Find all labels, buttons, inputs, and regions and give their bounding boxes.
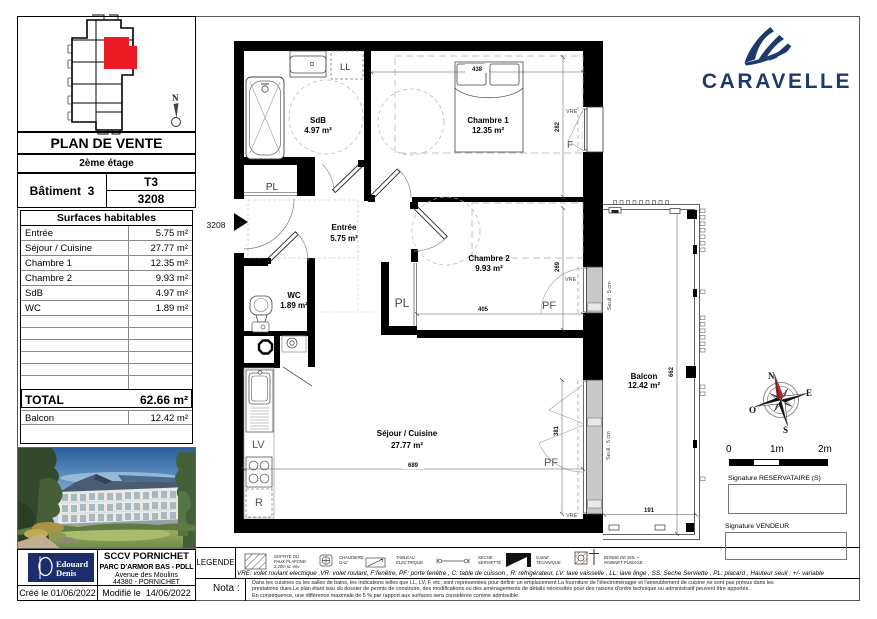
svg-text:F: F xyxy=(567,140,573,151)
svg-text:269: 269 xyxy=(555,261,561,272)
svg-text:5.75 m²: 5.75 m² xyxy=(330,234,358,243)
svg-text:12.35 m²: 12.35 m² xyxy=(472,126,504,135)
svg-text:VRE: VRE xyxy=(566,513,578,519)
svg-text:N: N xyxy=(768,371,775,381)
svg-text:Seuil : 5 cm: Seuil : 5 cm xyxy=(607,281,613,310)
svg-text:9.93 m²: 9.93 m² xyxy=(475,264,503,273)
svg-text:VRE: VRE xyxy=(565,277,577,283)
svg-text:282: 282 xyxy=(555,121,561,132)
svg-text:TECHNIQUE: TECHNIQUE xyxy=(536,560,561,565)
svg-text:Entrée: Entrée xyxy=(332,223,357,232)
svg-text:PL: PL xyxy=(395,296,410,310)
svg-text:3208: 3208 xyxy=(207,220,226,230)
svg-text:E: E xyxy=(806,388,812,398)
svg-text:O: O xyxy=(749,405,756,415)
svg-text:LV: LV xyxy=(252,439,265,451)
svg-text:191: 191 xyxy=(644,508,655,514)
svg-text:ELECTRIQUE: ELECTRIQUE xyxy=(396,560,423,565)
svg-text:438: 438 xyxy=(472,67,483,73)
svg-text:S: S xyxy=(783,425,788,435)
svg-text:689: 689 xyxy=(408,463,419,469)
svg-text:381: 381 xyxy=(554,425,560,436)
svg-text:Séjour / Cuisine: Séjour / Cuisine xyxy=(377,429,438,438)
svg-text:R: R xyxy=(255,497,263,509)
svg-text:Chambre 2: Chambre 2 xyxy=(468,254,510,263)
svg-text:12.42 m²: 12.42 m² xyxy=(628,381,660,390)
svg-text:4.97 m²: 4.97 m² xyxy=(304,126,332,135)
svg-text:PF: PF xyxy=(544,457,558,469)
svg-text:Balcon: Balcon xyxy=(631,372,658,381)
svg-text:VRE: VRE xyxy=(566,109,578,115)
svg-text:1.89 m²: 1.89 m² xyxy=(280,301,308,310)
svg-text:GAZ: GAZ xyxy=(339,560,348,565)
svg-text:LL: LL xyxy=(340,62,351,73)
svg-text:CARAVELLE: CARAVELLE xyxy=(702,70,852,93)
svg-text:WC: WC xyxy=(287,291,301,300)
svg-text:2.20m td. env.: 2.20m td. env. xyxy=(273,564,300,569)
svg-text:27.77 m²: 27.77 m² xyxy=(391,441,423,450)
svg-text:PL: PL xyxy=(266,182,279,193)
svg-text:SdB: SdB xyxy=(310,116,326,125)
svg-text:PF: PF xyxy=(542,300,556,312)
svg-text:Seuil : 5 cm: Seuil : 5 cm xyxy=(606,431,612,460)
svg-text:Chambre 1: Chambre 1 xyxy=(467,116,509,125)
svg-text:SERVIETTE: SERVIETTE xyxy=(478,560,501,565)
svg-text:405: 405 xyxy=(478,307,489,313)
svg-text:662: 662 xyxy=(669,366,675,377)
svg-text:ROBINET PUISAGE: ROBINET PUISAGE xyxy=(604,560,643,565)
